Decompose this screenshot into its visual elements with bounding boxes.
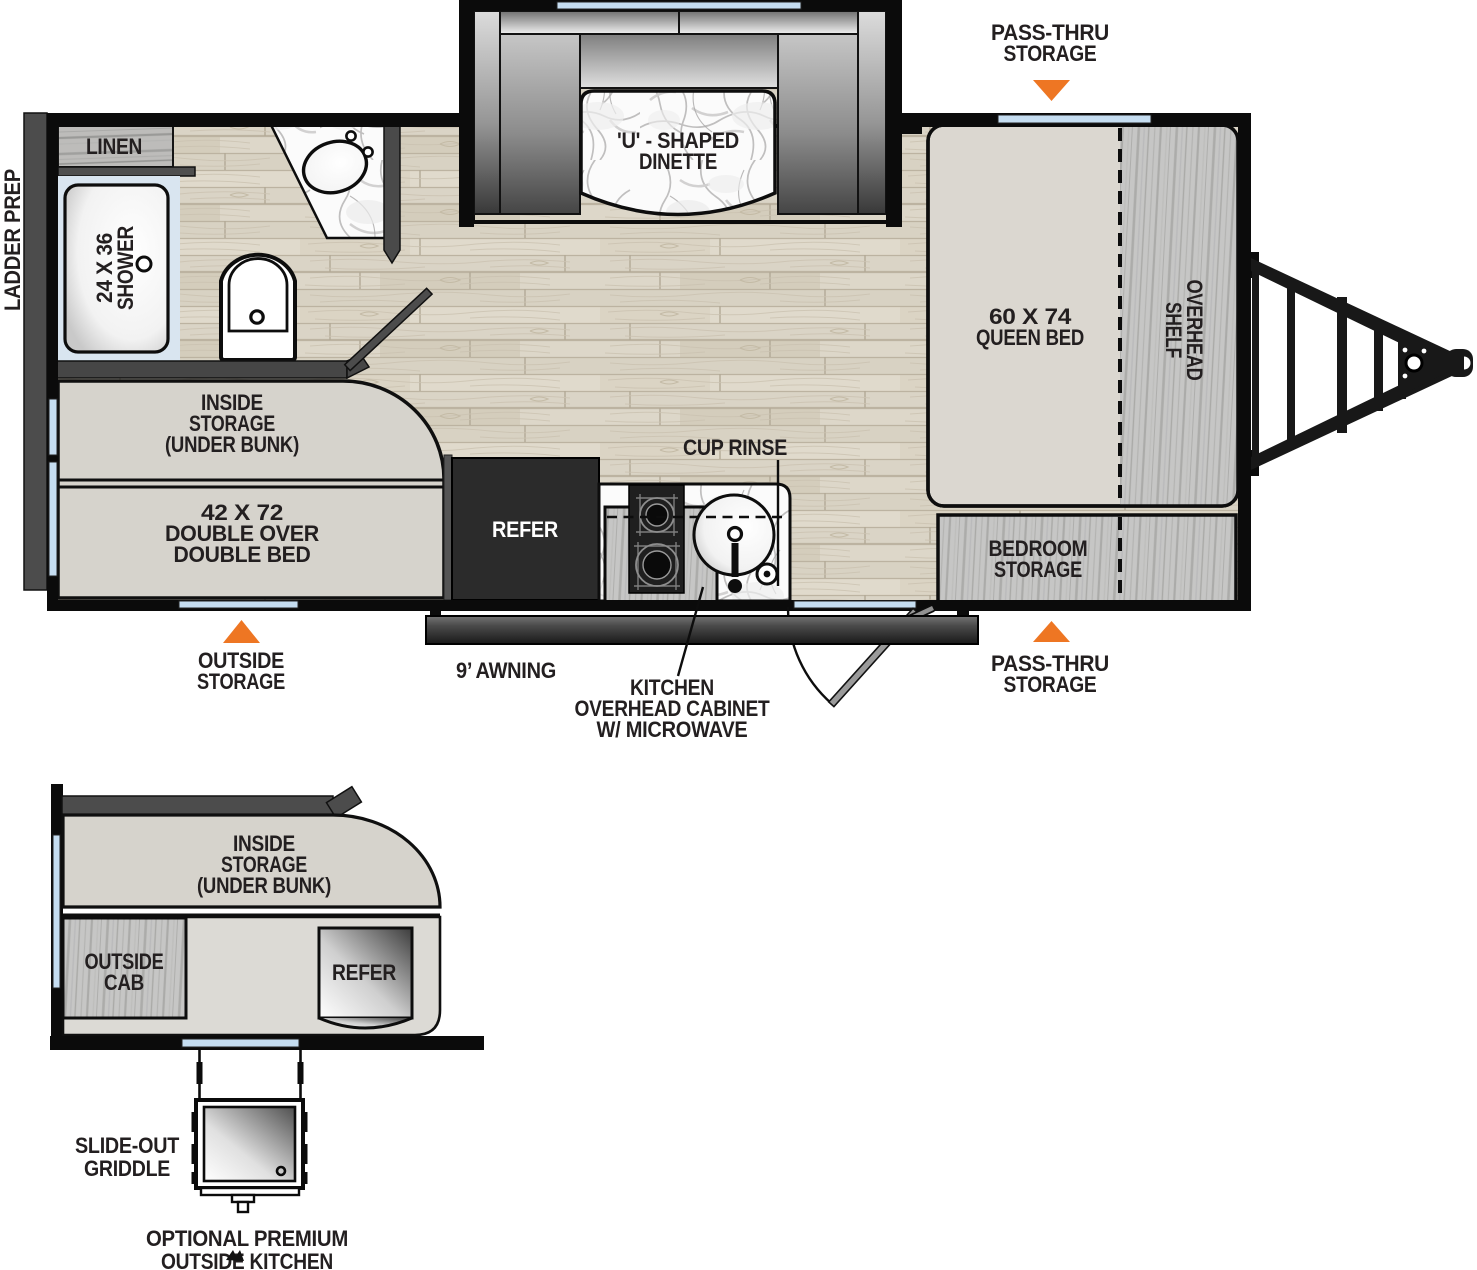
svg-text:OPTIONAL PREMIUM: OPTIONAL PREMIUM	[146, 1226, 348, 1251]
svg-text:DINETTE: DINETTE	[639, 149, 717, 174]
svg-text:W/ MICROWAVE: W/ MICROWAVE	[597, 717, 748, 742]
svg-text:LADDER PREP: LADDER PREP	[0, 169, 25, 311]
svg-text:OUTSIDE KITCHEN: OUTSIDE KITCHEN	[161, 1249, 333, 1270]
svg-text:(UNDER BUNK): (UNDER BUNK)	[197, 873, 331, 898]
svg-text:SLIDE-OUT: SLIDE-OUT	[75, 1133, 180, 1158]
svg-text:CUP RINSE: CUP RINSE	[683, 435, 787, 460]
svg-text:STORAGE: STORAGE	[1004, 672, 1097, 697]
svg-text:REFER: REFER	[492, 517, 558, 542]
svg-text:9’ AWNING: 9’ AWNING	[456, 658, 556, 683]
svg-text:(UNDER BUNK): (UNDER BUNK)	[165, 432, 299, 457]
svg-text:SHOWER: SHOWER	[113, 226, 138, 310]
svg-text:STORAGE: STORAGE	[197, 669, 285, 694]
svg-text:GRIDDLE: GRIDDLE	[84, 1156, 170, 1181]
svg-text:STORAGE: STORAGE	[1004, 41, 1097, 66]
svg-text:LINEN: LINEN	[86, 134, 142, 159]
svg-text:STORAGE: STORAGE	[994, 557, 1082, 582]
svg-text:CAB: CAB	[104, 970, 144, 995]
svg-text:QUEEN BED: QUEEN BED	[976, 325, 1084, 350]
svg-text:REFER: REFER	[332, 960, 396, 985]
svg-text:DOUBLE BED: DOUBLE BED	[174, 542, 311, 567]
svg-text:SHELF: SHELF	[1161, 302, 1186, 358]
